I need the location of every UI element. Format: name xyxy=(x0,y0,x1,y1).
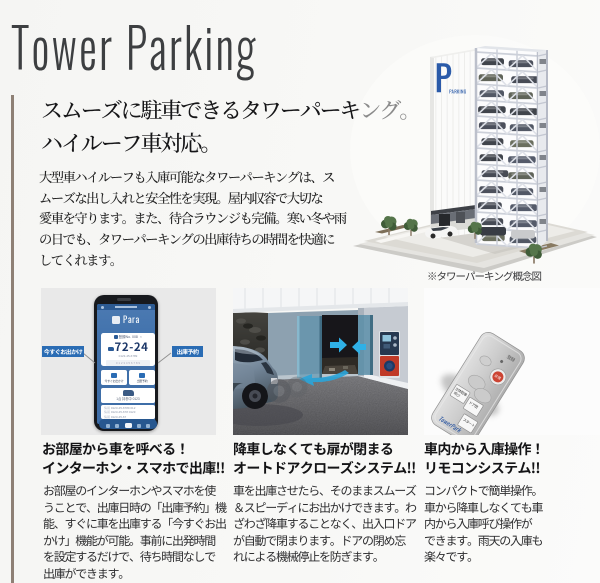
svg-text:PARKING: PARKING xyxy=(449,89,466,96)
